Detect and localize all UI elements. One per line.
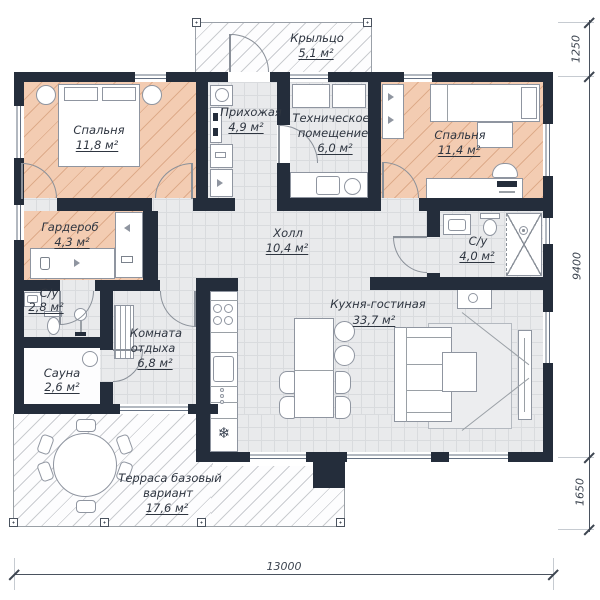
door-leaf — [194, 291, 196, 327]
hanger-icon — [74, 259, 80, 267]
window — [288, 72, 330, 82]
room-area-bathroom-left: 2,8 м² — [28, 300, 63, 314]
shower-base — [75, 332, 86, 336]
shower-drain — [519, 226, 528, 235]
room-area-terrace: 17,6 м² — [146, 501, 189, 515]
room-label-tech: помещение — [298, 126, 368, 140]
stove-burner — [213, 304, 222, 313]
hanger-icon — [388, 116, 394, 124]
drawer-handle — [220, 394, 224, 398]
window — [543, 216, 553, 246]
dining-chair — [335, 396, 351, 419]
room-label-tech: Техническое — [292, 111, 369, 125]
room-label-wardrobe: Гардероб — [41, 220, 98, 234]
counter-divider — [210, 402, 238, 403]
wall-interior — [196, 278, 238, 291]
wall-interior — [193, 198, 235, 211]
monitor-icon — [497, 181, 517, 187]
window — [14, 203, 24, 242]
room-area-wardrobe: 4,3 м² — [54, 235, 89, 249]
terrace-column-marker — [9, 518, 18, 527]
window — [133, 72, 168, 82]
dining-chair — [279, 396, 295, 419]
shower-icon — [506, 213, 542, 276]
table-seam — [294, 370, 334, 371]
room-label-bedroom-left: Спальня — [73, 123, 124, 137]
room-area-kitchen-living: 33,7 м² — [353, 313, 396, 327]
wardrobe-cabinet — [115, 212, 143, 278]
counter-divider — [210, 418, 238, 419]
terrace-column-marker — [197, 518, 206, 527]
door-leaf — [229, 34, 231, 72]
laundry-sink — [316, 176, 340, 195]
wall-interior — [277, 198, 381, 211]
porch-deck — [195, 22, 372, 73]
dimension-label-right-bottom: 1650 — [574, 478, 587, 506]
counter-divider — [210, 352, 238, 353]
pillow — [102, 87, 136, 101]
window — [248, 452, 308, 462]
washing-machine-drum — [215, 88, 229, 102]
window — [543, 122, 553, 178]
stove-burner — [213, 316, 222, 325]
counter-divider — [210, 332, 238, 333]
room-label-bathroom-right: С/у — [469, 234, 488, 248]
room-label-kitchen-living: Кухня-гостиная — [330, 297, 425, 311]
wall-interior — [57, 198, 152, 211]
window — [447, 452, 510, 462]
counter-divider — [210, 386, 238, 387]
dimension-label-right-top: 1250 — [570, 35, 583, 63]
sink-basin — [448, 219, 466, 231]
room-label-lounge: отдыха — [131, 341, 176, 355]
room-label-terrace: Терраса базовый — [118, 471, 221, 485]
room-label-entry: Прихожая — [220, 105, 282, 119]
sauna-stove — [82, 351, 98, 367]
tech-shelf — [292, 84, 330, 108]
sofa-cushion-line — [407, 337, 452, 338]
room-label-sauna: Сауна — [44, 366, 80, 380]
door-leaf — [278, 125, 280, 163]
wall-interior — [196, 82, 208, 211]
window — [14, 104, 24, 160]
wall-interior — [427, 277, 553, 290]
drawer-handle — [220, 400, 224, 404]
room-label-bedroom-right: Спальня — [434, 128, 485, 142]
sofa-backrest — [406, 327, 407, 422]
room-area-porch: 5,1 м² — [298, 46, 333, 60]
terrace-column-marker — [336, 518, 345, 527]
terrace-column-marker — [100, 518, 109, 527]
hanger-icon — [124, 224, 130, 232]
room-label-lounge: Комната — [130, 326, 182, 340]
keyboard-icon — [499, 191, 515, 193]
wall-interior — [419, 198, 553, 211]
wall-interior — [143, 211, 158, 291]
pillow — [521, 87, 537, 119]
pillow — [64, 87, 98, 101]
wall-interior — [427, 211, 440, 237]
room-area-lounge: 6,8 м² — [137, 356, 172, 370]
cabinet-detail — [213, 113, 218, 121]
nightstand — [36, 85, 56, 105]
room-area-bathroom-right: 4,0 м² — [459, 249, 494, 263]
door-leaf — [393, 236, 427, 238]
room-area-tech: 6,0 м² — [317, 141, 352, 155]
coffee-table — [442, 352, 477, 392]
room-area-bedroom-right: 11,4 м² — [438, 143, 481, 157]
sofa-cushion-line — [407, 412, 452, 413]
shelf-icon — [121, 256, 133, 263]
room-area-entry: 4,9 м² — [228, 120, 263, 134]
dining-chair — [279, 371, 295, 394]
wall-interior — [100, 291, 113, 350]
window — [543, 310, 553, 365]
room-label-terrace: вариант — [143, 486, 193, 500]
drawer-handle — [220, 388, 224, 392]
terrace-edge — [13, 414, 14, 527]
stool — [334, 345, 355, 366]
snowflake-icon: ❄ — [218, 426, 231, 440]
porch-column-marker — [192, 18, 201, 27]
tv-panel — [518, 330, 532, 420]
hanger-icon — [388, 93, 394, 101]
room-area-hall: 10,4 м² — [266, 241, 309, 255]
wall-interior — [100, 382, 113, 404]
shelf-icon — [215, 152, 226, 158]
tv-screen-line — [524, 338, 525, 412]
door-opening — [228, 72, 270, 82]
wall-corner-post — [313, 452, 345, 488]
dimension-label-bottom: 13000 — [267, 560, 302, 573]
door-leaf — [21, 163, 23, 199]
stove-burner — [224, 304, 233, 313]
porch-column-marker — [363, 18, 372, 27]
dimension-line-bottom — [14, 574, 554, 575]
room-label-hall: Холл — [273, 226, 303, 240]
stove-burner — [224, 316, 233, 325]
tech-shelf — [332, 84, 366, 108]
wall-kitchen-left — [196, 282, 210, 462]
door-leaf — [191, 163, 193, 199]
blanket-line — [447, 84, 448, 122]
dining-table — [294, 318, 334, 418]
terrace-chair — [76, 500, 96, 513]
washer-drum-icon — [344, 178, 361, 195]
window — [345, 452, 433, 462]
wall-interior — [95, 280, 160, 291]
dimension-label-right-middle: 9400 — [571, 252, 584, 280]
counter-divider — [210, 300, 238, 301]
floor-plan: ❄ — [0, 0, 600, 600]
terrace-edge — [13, 526, 345, 527]
window — [402, 72, 434, 82]
cabinet-detail — [213, 128, 218, 136]
wall-interior — [370, 277, 427, 290]
terrace-door — [118, 404, 190, 414]
fireplace-flue — [468, 293, 478, 303]
hanger-icon — [217, 179, 223, 187]
wall-exterior-top — [14, 72, 553, 82]
wall-interior — [22, 337, 100, 348]
room-area-bedroom-left: 11,8 м² — [76, 138, 119, 152]
door-leaf — [382, 162, 384, 198]
desk-chair — [492, 163, 518, 178]
dining-chair — [335, 371, 351, 394]
bag-icon — [40, 257, 50, 270]
kitchen-sink — [213, 356, 234, 382]
wall-interior — [368, 82, 381, 211]
room-label-bathroom-left: С/у — [40, 286, 59, 300]
nightstand — [142, 85, 162, 105]
room-area-sauna: 2,6 м² — [44, 380, 79, 394]
terrace-round-table — [53, 433, 117, 497]
room-label-porch: Крыльцо — [290, 31, 344, 45]
terrace-chair — [76, 419, 96, 432]
